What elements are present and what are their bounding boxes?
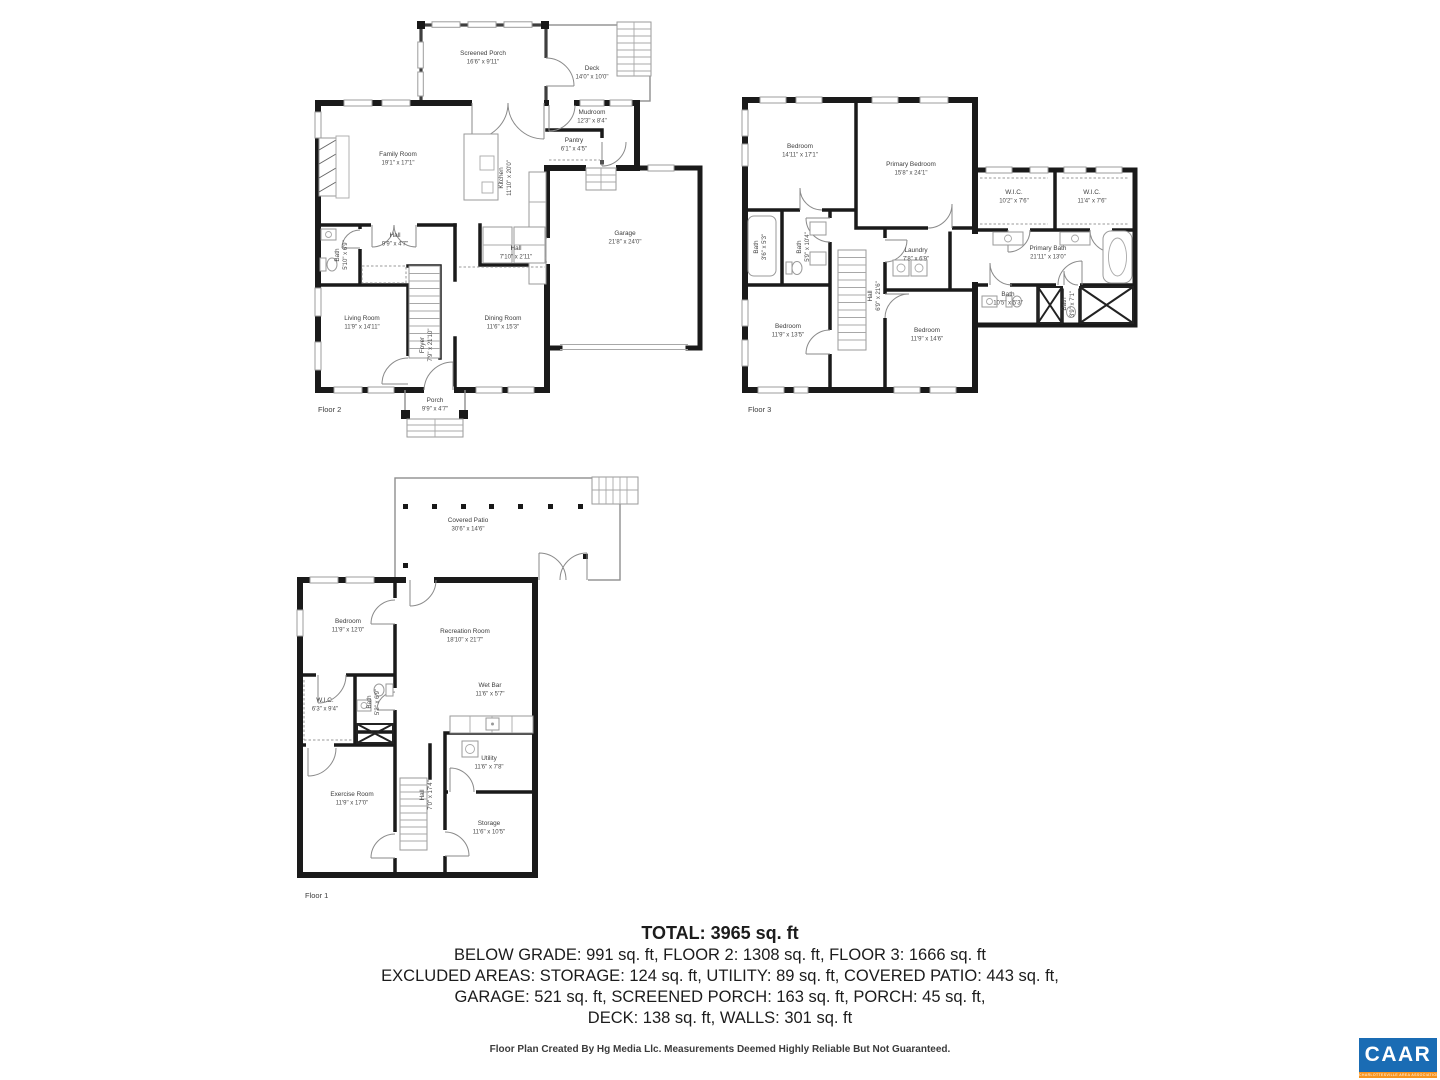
- room-dims: 15'8" x 24'1": [895, 171, 928, 177]
- room-dims: 3'6" x 5'3": [762, 234, 768, 260]
- room-dims: 5'10" x 6'9": [343, 240, 349, 270]
- room-label: Recreation Room: [440, 628, 490, 635]
- room-dims: 10'5" x 5'3": [993, 301, 1023, 307]
- room-dims: 11'6" x 10'5": [473, 830, 505, 836]
- room-dims: 7'8" x 6'9": [903, 257, 929, 263]
- room-label: Hall: [867, 290, 874, 301]
- room-dims: 11'6" x 5'7": [475, 692, 504, 698]
- room-label: Bath: [796, 240, 803, 254]
- credit-line: Floor Plan Created By Hg Media Llc. Meas…: [0, 1044, 1440, 1055]
- room-label: W.I.C.: [1083, 189, 1101, 196]
- room-label: W.I.C.: [1005, 189, 1023, 196]
- floor3-stairs-icon: [838, 250, 866, 350]
- floor3-room-labels: Bedroom 14'11" x 17'1" Primary Bedroom 1…: [748, 143, 1107, 414]
- room-dims: 21'8" x 24'0": [609, 240, 642, 246]
- room-dims: 16'6" x 9'11": [467, 60, 499, 66]
- wet-bar-counter-icon: [450, 716, 533, 733]
- room-label: Screened Porch: [460, 50, 506, 57]
- room-label: Bath: [334, 248, 341, 262]
- room-label: Dining Room: [485, 315, 522, 322]
- room-dims: 11'9" x 12'0": [332, 628, 364, 634]
- floor-1-label: Floor 1: [305, 891, 328, 900]
- room-label: Bedroom: [787, 143, 813, 150]
- room-dims: 11'9" x 17'0": [336, 801, 368, 807]
- room-dims: 7'0" x 17'4": [428, 780, 434, 810]
- room-dims: 11'6" x 7'8": [474, 765, 503, 771]
- room-label: Kitchen: [498, 167, 505, 189]
- hall2-closets-icon: [459, 227, 545, 267]
- kitchen-island-icon: [464, 134, 498, 200]
- room-dims: 18'10" x 21'7": [447, 638, 483, 644]
- room-dims: 6'1" x 4'5": [561, 147, 587, 153]
- room-dims: 10'2" x 7'6": [999, 199, 1029, 205]
- room-dims: 30'6" x 14'6": [452, 527, 485, 533]
- floor-2-label: Floor 2: [318, 405, 341, 414]
- room-label: Hall: [419, 789, 426, 800]
- room-label: Utility: [481, 755, 497, 762]
- linen-closets-icon: [1038, 287, 1133, 323]
- room-label: Wet Bar: [479, 682, 503, 689]
- room-label: W.I.C.: [316, 697, 334, 704]
- room-label: Hall: [389, 232, 400, 239]
- room-label: Storage: [478, 820, 501, 827]
- room-dims: 5'2" x 6'9": [375, 689, 381, 715]
- room-label: Hall: [510, 245, 521, 252]
- summary-line-4: DECK: 138 sq. ft, WALLS: 301 sq. ft: [0, 1008, 1440, 1029]
- room-label: Foyer: [419, 336, 426, 353]
- room-dims: 6'3" x 9'4": [312, 707, 338, 713]
- room-label: Bath: [366, 695, 373, 709]
- summary-line-2: EXCLUDED AREAS: STORAGE: 124 sq. ft, UTI…: [0, 966, 1440, 987]
- fireplace-icon: [319, 136, 349, 198]
- room-dims: 6'9" x 21'6": [876, 281, 882, 311]
- room-dims: 7'10" x 2'11": [500, 255, 532, 261]
- room-label: Living Room: [344, 315, 380, 322]
- caar-logo-text: CAAR: [1359, 1038, 1437, 1072]
- washer-icon: [462, 741, 478, 757]
- room-label: Garage: [614, 230, 636, 237]
- room-label: Porch: [427, 397, 444, 404]
- total-area: TOTAL: 3965 sq. ft: [0, 922, 1440, 945]
- room-dims: 9'9" x 4'7": [422, 407, 448, 413]
- room-label: Exercise Room: [330, 791, 373, 798]
- floor-2-plan: Screened Porch 16'6" x 9'11" Deck 14'0" …: [300, 10, 710, 445]
- caar-logo-strip: CHARLOTTESVILLE AREA ASSOCIATION OF REAL…: [1359, 1072, 1437, 1078]
- floor1-stairs-icon: [400, 778, 427, 850]
- area-summary: TOTAL: 3965 sq. ft BELOW GRADE: 991 sq. …: [0, 922, 1440, 1029]
- room-dims: 11'9" x 13'5": [772, 333, 804, 339]
- room-label: Bath: [753, 240, 760, 254]
- summary-line-1: BELOW GRADE: 991 sq. ft, FLOOR 2: 1308 s…: [0, 945, 1440, 966]
- room-dims: 11'9" x 14'11": [344, 325, 379, 331]
- room-label: Family Room: [379, 151, 417, 158]
- room-label: Covered Patio: [448, 517, 489, 524]
- room-dims: 14'11" x 17'1": [782, 153, 818, 159]
- room-label: Deck: [585, 65, 600, 72]
- room-dims: 11'4" x 7'6": [1077, 199, 1106, 205]
- room-label: Primary Bedroom: [886, 161, 936, 168]
- room-dims: 11'6" x 15'3": [487, 325, 519, 331]
- room-label: Bedroom: [335, 618, 361, 625]
- room-dims: 21'11" x 13'0": [1030, 255, 1066, 261]
- room-label: Mudroom: [579, 109, 606, 116]
- hall-closet-icon: [362, 266, 406, 283]
- room-label: Laundry: [904, 247, 928, 254]
- room-label: Bath: [1061, 297, 1068, 311]
- room-label: Bedroom: [775, 323, 801, 330]
- room-dims: 5'9" x 10'4": [805, 232, 811, 262]
- floor-1-plan: Covered Patio 30'6" x 14'6" Bedroom 11'9…: [290, 470, 650, 905]
- covered-patio-outline: [395, 477, 638, 580]
- room-dims: 19'1" x 17'1": [382, 161, 415, 167]
- room-dims: 7'9" x 21'10": [428, 329, 434, 362]
- room-label: Primary Bath: [1030, 245, 1067, 252]
- caar-logo: CAAR CHARLOTTESVILLE AREA ASSOCIATION OF…: [1359, 1038, 1437, 1078]
- room-dims: 3'9" x 7'1": [1070, 291, 1076, 317]
- room-label: Pantry: [565, 137, 584, 144]
- summary-line-3: GARAGE: 521 sq. ft, SCREENED PORCH: 163 …: [0, 987, 1440, 1008]
- room-dims: 11'9" x 14'6": [911, 337, 943, 343]
- deck-outline: [546, 22, 651, 101]
- room-dims: 12'3" x 8'4": [577, 119, 607, 125]
- floor-3-plan: Bedroom 14'11" x 17'1" Primary Bedroom 1…: [735, 95, 1145, 415]
- floor1-doors: [308, 553, 587, 858]
- room-label: Bedroom: [914, 327, 940, 334]
- room-label: Bath: [1001, 291, 1015, 298]
- room-dims: 9'9" x 4'7": [382, 242, 408, 248]
- room-dims: 11'10" x 20'0": [507, 160, 513, 196]
- floor-3-label: Floor 3: [748, 405, 771, 414]
- room-dims: 14'0" x 10'0": [576, 75, 609, 81]
